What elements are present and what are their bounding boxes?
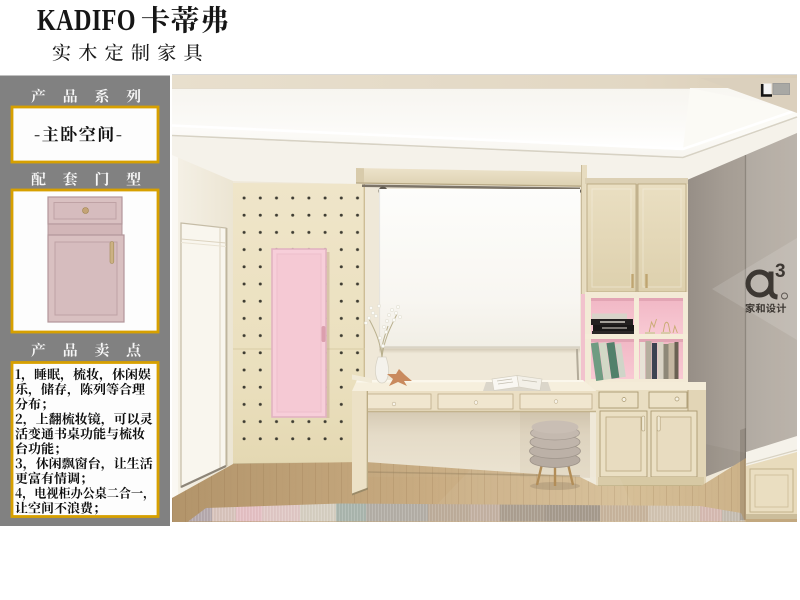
svg-text:3: 3 [775, 261, 786, 282]
svg-text:KADIFO: KADIFO [37, 3, 136, 38]
